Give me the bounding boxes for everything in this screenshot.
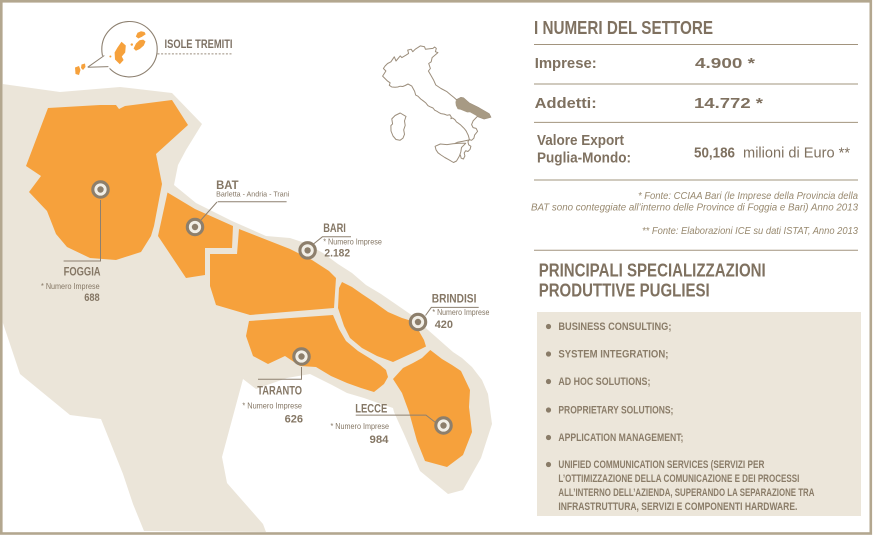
- svg-text:BAT sono conteggiate all’inter: BAT sono conteggiate all’interno delle P…: [531, 203, 858, 214]
- svg-text:4.900 *: 4.900 *: [695, 55, 755, 72]
- svg-text:* Fonte: CCIAA Bari (le Impres: * Fonte: CCIAA Bari (le Imprese della Pr…: [638, 191, 858, 202]
- svg-text:APPLICATION MANAGEMENT;: APPLICATION MANAGEMENT;: [558, 432, 683, 444]
- svg-text:BUSINESS CONSULTING;: BUSINESS CONSULTING;: [558, 321, 671, 333]
- svg-text:FOGGIA: FOGGIA: [64, 267, 101, 279]
- svg-text:* Numero Imprese: * Numero Imprese: [331, 422, 390, 431]
- svg-text:420: 420: [435, 319, 453, 331]
- svg-text:BRINDISI: BRINDISI: [432, 293, 477, 305]
- svg-text:* Numero Imprese: * Numero Imprese: [323, 237, 382, 246]
- svg-text:INFRASTRUTTURA, SERVIZI E COMP: INFRASTRUTTURA, SERVIZI E COMPONENTI HAR…: [558, 501, 797, 513]
- svg-text:984: 984: [370, 434, 390, 446]
- svg-text:** Fonte: Elaborazioni ICE su: ** Fonte: Elaborazioni ICE su dati ISTAT…: [642, 226, 858, 237]
- svg-text:ISOLE TREMITI: ISOLE TREMITI: [165, 37, 233, 51]
- svg-text:2.182: 2.182: [324, 247, 350, 259]
- svg-text:TARANTO: TARANTO: [257, 386, 302, 398]
- svg-text:Barletta - Andria - Trani: Barletta - Andria - Trani: [216, 191, 290, 198]
- svg-text:L’OTTIMIZZAZIONE DELLA COMUNIC: L’OTTIMIZZAZIONE DELLA COMUNICAZIONE E D…: [558, 473, 799, 485]
- svg-text:BAT: BAT: [216, 180, 238, 192]
- svg-text:PROPRIETARY SOLUTIONS;: PROPRIETARY SOLUTIONS;: [558, 405, 673, 417]
- svg-text:BARI: BARI: [323, 223, 346, 235]
- svg-text:AD HOC SOLUTIONS;: AD HOC SOLUTIONS;: [558, 376, 650, 388]
- svg-text:LECCE: LECCE: [355, 404, 387, 416]
- svg-text:ALL’INTERNO DELL’AZIENDA, SUPE: ALL’INTERNO DELL’AZIENDA, SUPERANDO LA S…: [558, 487, 814, 499]
- svg-text:* Numero Imprese: * Numero Imprese: [432, 308, 489, 317]
- svg-text:50,186 milioni di Euro **: 50,186 milioni di Euro **: [694, 145, 850, 162]
- svg-text:PRODUTTIVE PUGLIESI: PRODUTTIVE PUGLIESI: [539, 281, 710, 301]
- svg-text:688: 688: [84, 292, 100, 304]
- svg-text:* Numero Imprese: * Numero Imprese: [242, 401, 302, 410]
- svg-text:14.772 *: 14.772 *: [694, 95, 763, 112]
- svg-text:Addetti:: Addetti:: [535, 95, 597, 112]
- svg-text:Imprese:: Imprese:: [535, 55, 597, 72]
- svg-text:I NUMERI DEL SETTORE: I NUMERI DEL SETTORE: [534, 18, 713, 38]
- svg-text:* Numero Imprese: * Numero Imprese: [41, 282, 100, 291]
- svg-text:626: 626: [285, 413, 303, 425]
- svg-text:UNIFIED COMMUNICATION SERVICES: UNIFIED COMMUNICATION SERVICES (SERVIZI …: [558, 459, 764, 471]
- svg-text:Puglia-Mondo:: Puglia-Mondo:: [537, 150, 631, 167]
- svg-text:Valore Export: Valore Export: [537, 132, 624, 149]
- svg-text:PRINCIPALI SPECIALIZZAZIONI: PRINCIPALI SPECIALIZZAZIONI: [539, 261, 766, 281]
- svg-text:SYSTEM INTEGRATION;: SYSTEM INTEGRATION;: [558, 349, 668, 361]
